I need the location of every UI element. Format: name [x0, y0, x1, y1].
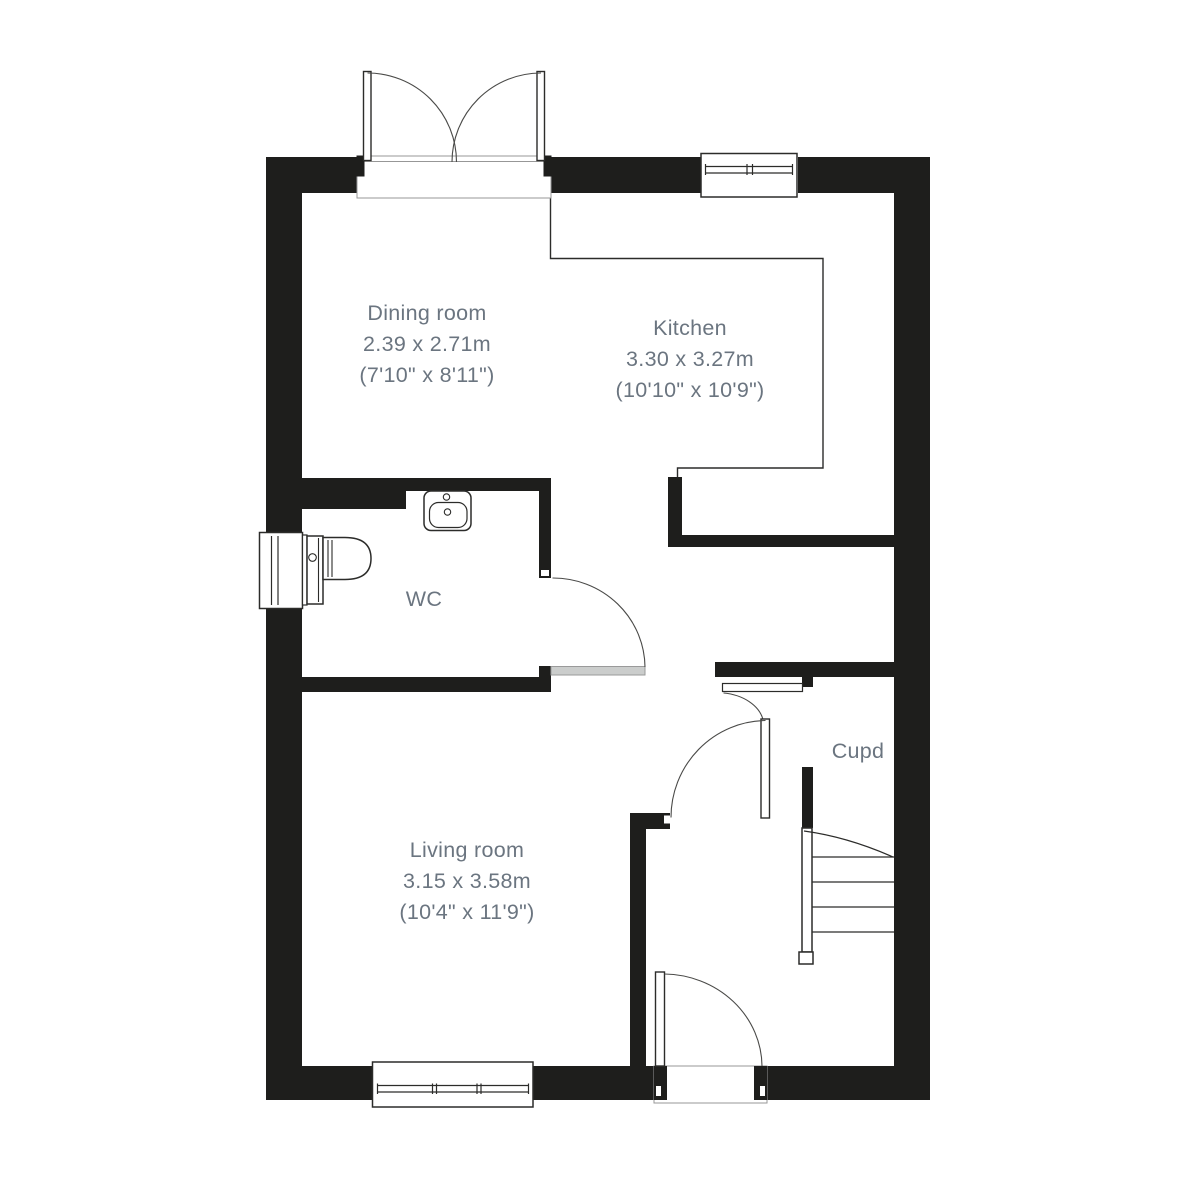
french-doors — [357, 72, 552, 199]
toilet-flush-button — [309, 554, 317, 562]
sink-tap — [443, 494, 449, 500]
hall-wall-vertical — [630, 829, 646, 1066]
french-door-leaf-right — [537, 72, 545, 161]
french-door-arc-left — [368, 73, 457, 162]
living-room-door-arc — [671, 721, 766, 818]
wc-door-leaf — [551, 667, 645, 676]
kitchen-divider-horizontal — [682, 535, 894, 547]
front-door — [654, 972, 767, 1103]
stairs — [799, 828, 894, 964]
room-label-kitchen: Kitchen 3.30 x 3.27m (10'10" x 10'9") — [590, 313, 790, 406]
wc-top-wall-thin — [302, 478, 551, 491]
interior-walls — [302, 477, 894, 1066]
french-door-arc-right — [452, 73, 541, 162]
french-door-leaf-left — [364, 72, 372, 161]
room-label-living: Living room 3.15 x 3.58m (10'4" x 11'9") — [367, 835, 567, 928]
wall-bottom — [266, 1066, 930, 1100]
wc-top-wall-thick — [302, 491, 406, 509]
wc-right-wall — [539, 478, 551, 578]
room-name: Living room — [367, 835, 567, 866]
living-room-door-leaf — [761, 719, 770, 818]
living-room-window — [373, 1062, 534, 1107]
room-size-imperial: (10'4" x 11'9") — [367, 897, 567, 928]
room-size-metric: 2.39 x 2.71m — [327, 329, 527, 360]
toilet-bowl — [323, 538, 371, 580]
door-jamb-ticks — [541, 570, 670, 824]
stairs-stringer-foot — [799, 952, 813, 964]
room-name: Cupd — [808, 736, 908, 767]
room-label-cupboard: Cupd — [808, 736, 908, 767]
sink-fixture — [424, 491, 471, 531]
room-name: Dining room — [327, 298, 527, 329]
kitchen-window — [701, 154, 797, 198]
room-name: Kitchen — [590, 313, 790, 344]
front-door-leaf — [656, 972, 665, 1066]
room-size-metric: 3.30 x 3.27m — [590, 344, 790, 375]
toilet-cistern — [307, 536, 323, 604]
front-door-threshold — [654, 1066, 767, 1103]
wall-right — [894, 157, 930, 1100]
toilet-fixture — [307, 536, 371, 604]
french-door-threshold — [357, 156, 551, 198]
floor-plan-page: Dining room 2.39 x 2.71m (7'10" x 8'11")… — [0, 0, 1200, 1200]
room-size-imperial: (7'10" x 8'11") — [327, 360, 527, 391]
cupboard-door-frame — [723, 684, 803, 692]
room-size-imperial: (10'10" x 10'9") — [590, 375, 790, 406]
room-label-dining: Dining room 2.39 x 2.71m (7'10" x 8'11") — [327, 298, 527, 391]
cupboard-door-stub — [802, 677, 813, 687]
cupboard-top-wall — [715, 662, 894, 677]
stairs-stringer — [802, 828, 812, 952]
floor-plan-drawing — [0, 0, 1200, 1200]
wc-window — [260, 533, 308, 609]
room-label-wc: WC — [374, 584, 474, 615]
living-room-door — [671, 719, 770, 818]
wall-left — [266, 157, 302, 1100]
cupboard-door-arc — [724, 693, 764, 720]
wc-door-hinge-stub — [539, 666, 551, 677]
cupboard-door — [723, 684, 803, 720]
wc-door-arc — [553, 578, 646, 667]
wc-bottom-wall — [302, 677, 551, 692]
room-name: WC — [374, 584, 474, 615]
stairs-break-line — [804, 831, 893, 857]
kitchen-divider-vertical — [668, 477, 682, 547]
wc-door — [551, 578, 645, 675]
cupboard-side-stub — [802, 767, 813, 828]
sink-drain — [444, 509, 450, 515]
front-door-arc — [665, 974, 763, 1066]
room-size-metric: 3.15 x 3.58m — [367, 866, 567, 897]
